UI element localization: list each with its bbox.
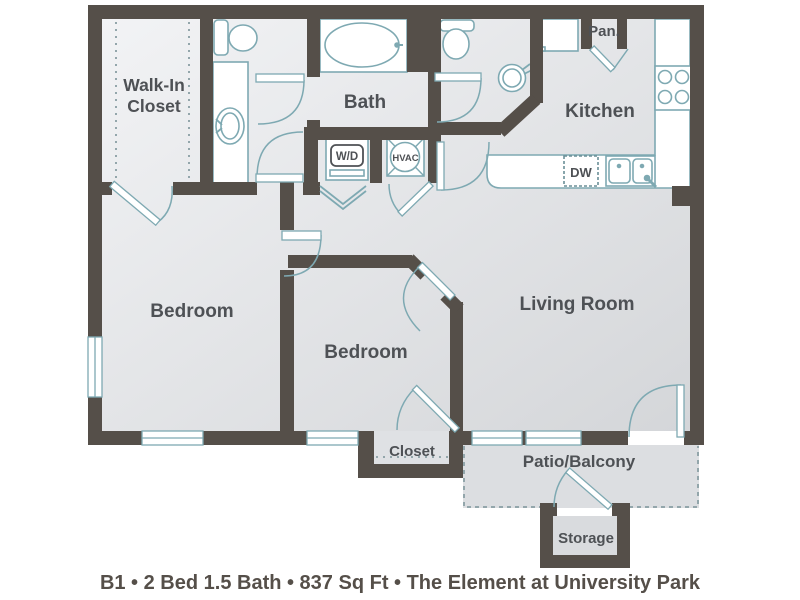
bath-inner-door-leaf xyxy=(256,74,304,82)
kitchen-label: Kitchen xyxy=(565,101,635,122)
bath-label: Bath xyxy=(344,92,386,113)
bedroom1-side-window xyxy=(88,337,102,397)
pantry-label: Pan. xyxy=(588,23,620,40)
caption: B1 • 2 Bed 1.5 Bath • 837 Sq Ft • The El… xyxy=(100,572,701,594)
bedroom1-door-leaf xyxy=(282,231,321,240)
kitchen-sink xyxy=(606,156,656,187)
bedroom2-window xyxy=(307,431,358,445)
closet-label: Closet xyxy=(389,443,435,460)
living-room-window-1 xyxy=(472,431,522,445)
bedroom2-label: Bedroom xyxy=(324,342,407,363)
patio-door-leaf xyxy=(677,385,684,437)
wd-label: W/D xyxy=(336,151,358,163)
storage-label: Storage xyxy=(558,530,614,547)
bedroom1-label: Bedroom xyxy=(150,301,233,322)
walkin-closet-label-line1: Walk-In xyxy=(123,75,185,95)
living-room-label: Living Room xyxy=(519,294,634,315)
refrigerator xyxy=(537,19,578,51)
bath-entry-door-leaf xyxy=(256,174,303,182)
vanity-sink xyxy=(213,62,248,183)
living-room-window-2 xyxy=(526,431,581,445)
dishwasher-label: DW xyxy=(570,165,592,180)
half-bath-inner-door-leaf xyxy=(435,73,481,81)
bathtub xyxy=(320,19,407,72)
stove xyxy=(655,66,691,110)
floor-plan: Walk-In Closet Bath Pan. Kitchen W/D HVA… xyxy=(0,0,800,600)
bedroom1-window xyxy=(142,431,203,445)
patio-label: Patio/Balcony xyxy=(523,452,636,471)
walkin-closet-label-line2: Closet xyxy=(127,96,181,116)
unit-floor xyxy=(102,19,690,431)
hvac-label: HVAC xyxy=(392,153,418,164)
half-bath-door-leaf xyxy=(437,142,444,190)
